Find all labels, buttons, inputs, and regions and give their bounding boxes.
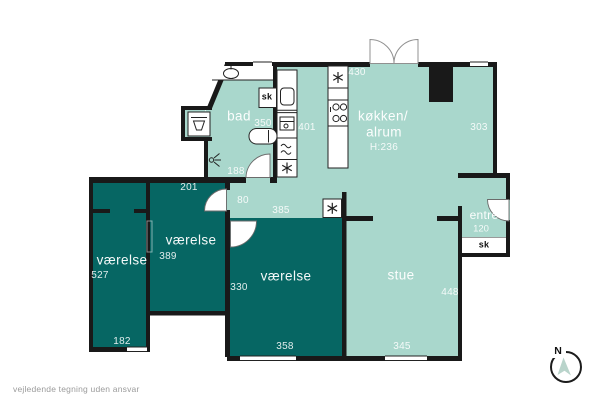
dim-vaerelse-bottom-left: 330 [230,283,248,293]
dim-hall-width: 80 [237,196,249,206]
dim-stue-bottom: 345 [393,342,411,352]
window [470,62,488,68]
room-label-entre: entré [470,209,499,221]
dim-hall-length: 385 [272,206,290,216]
compass-arrow-icon [558,358,572,376]
dim-bad-bottom: 188 [227,167,245,177]
closet-label-bad: sk [262,93,272,102]
dim-vaerelse-bottom: 358 [276,342,294,352]
room-label-kitchen-2: alrum [366,125,402,139]
dim-stue-right: 448 [441,288,459,298]
room-label-vaerelse-left: værelse [97,253,148,267]
dim-entre: 120 [473,224,489,234]
kitchen-island [328,66,348,168]
room-label-stue: stue [387,268,414,282]
dim-vaerelse-mid: 389 [159,252,177,262]
dim-vaerelse-mid-top: 201 [180,183,198,193]
french-door-right [394,40,418,64]
floorplan-canvas [0,0,600,400]
dim-kitchen-top: 430 [348,68,366,78]
window [240,356,296,362]
chimney-block [429,66,453,102]
dim-vaerelse-left: 527 [91,271,109,281]
toilet-counter [212,66,273,80]
floorplan-page: bad sk 350 188 køkken/ alrum H:236 430 4… [0,0,600,400]
window [385,356,427,362]
dim-bad-width: 350 [254,119,272,129]
dim-kitchen-left: 401 [298,123,316,133]
washbasin-icon [188,112,210,136]
room-label-kitchen-1: køkken/ [358,109,408,123]
room-label-vaerelse-mid: værelse [166,233,217,247]
dim-vaerelse-left-bottom: 182 [113,337,131,347]
closet-label-entre: sk [479,241,489,250]
hall-freezer-box [323,199,342,218]
room-label-bad: bad [227,109,251,123]
dim-kitchen-right: 303 [470,123,488,133]
room-label-vaerelse-bottom: værelse [261,269,312,283]
bathtub-icon [249,129,277,145]
kitchen-counter [277,70,297,177]
disclaimer-text: vejledende tegning uden ansvar [13,384,140,394]
ceiling-height-kitchen: H:236 [370,143,398,153]
window [127,347,147,353]
compass-north-label: N [554,346,562,357]
french-door-left [370,39,394,63]
